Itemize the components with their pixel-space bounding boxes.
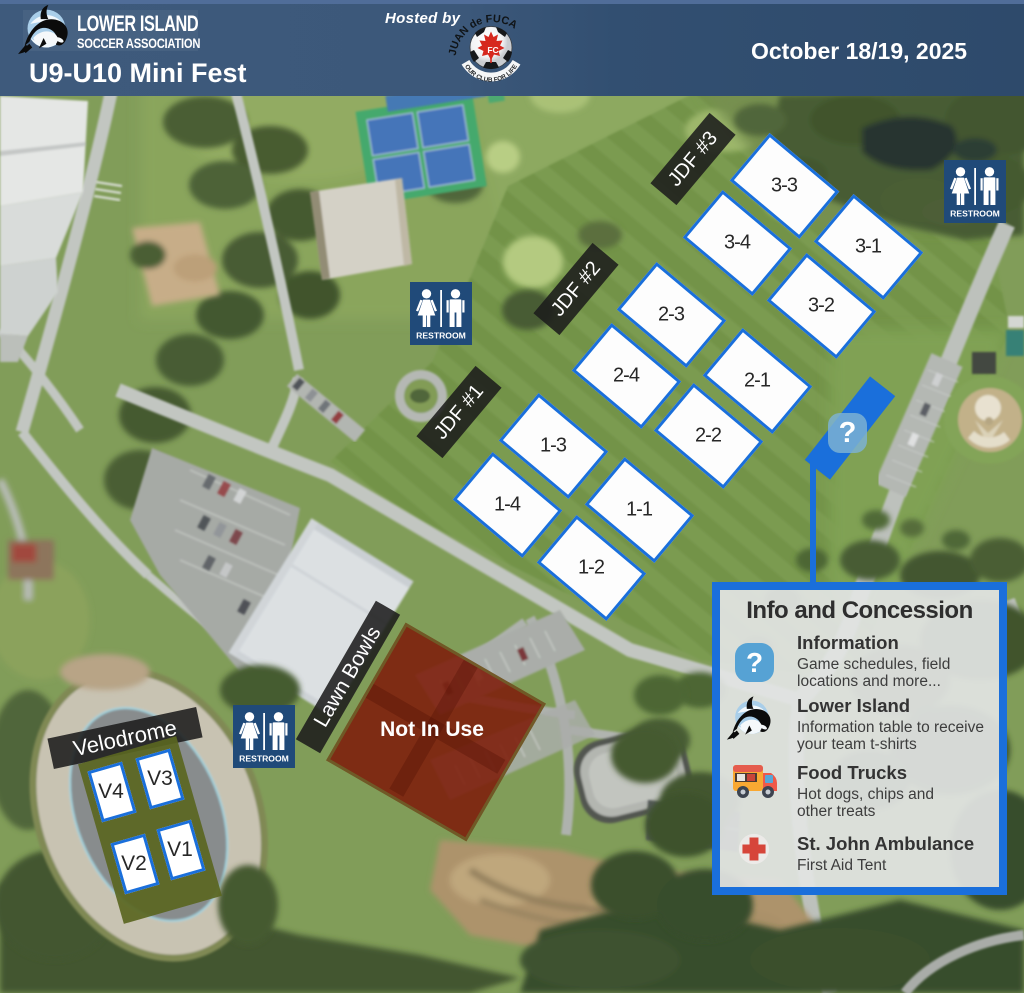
svg-text:FC: FC xyxy=(487,45,498,55)
